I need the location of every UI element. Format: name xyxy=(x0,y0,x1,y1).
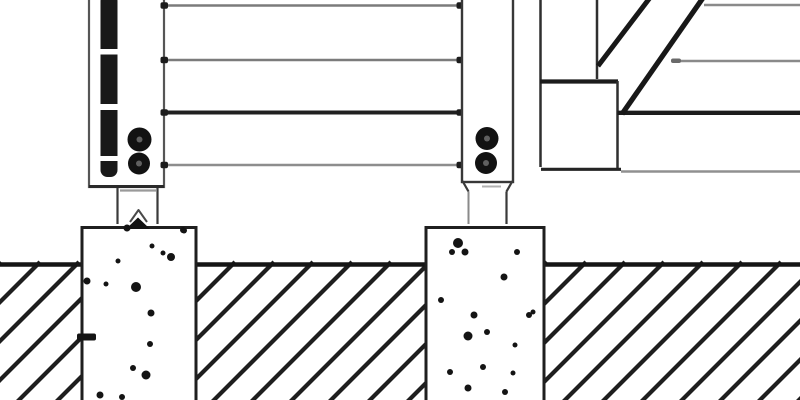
soil-hatch-line xyxy=(210,262,352,400)
diagram-svg xyxy=(0,0,800,400)
footing-speckle xyxy=(181,228,187,234)
footing-speckle xyxy=(97,392,104,399)
soil-hatch-line xyxy=(561,262,703,400)
footing-speckle xyxy=(161,251,166,256)
footing-speckle xyxy=(462,249,469,256)
footing-speckle xyxy=(513,343,518,348)
footing-speckle xyxy=(501,274,508,281)
footing-speckle xyxy=(150,244,155,249)
construction-detail-diagram xyxy=(0,0,800,400)
rail-end-tick xyxy=(161,57,169,64)
rail-end-tick xyxy=(161,109,169,116)
left-post-anchor-bar xyxy=(101,0,118,177)
footing-speckle xyxy=(147,341,153,347)
left-post-bolt-center xyxy=(137,137,143,143)
footing-speckle xyxy=(447,369,453,375)
footing-speckle xyxy=(453,238,463,248)
footing-speckle xyxy=(104,282,109,287)
left-anchor-arrow xyxy=(126,218,150,230)
footing-speckle xyxy=(148,310,155,317)
footing-speckle xyxy=(119,394,125,400)
left-footing-fill xyxy=(82,226,196,400)
footing-speckle xyxy=(142,371,151,380)
footing-speckle xyxy=(480,364,486,370)
footing-speckle xyxy=(465,385,472,392)
footing-speckle xyxy=(514,249,520,255)
soil-hatch-line xyxy=(639,262,781,400)
footing-speckle xyxy=(167,253,175,261)
soil-hatch-line xyxy=(0,262,40,400)
right-post-bolt-center xyxy=(484,136,490,142)
soil-hatch-line xyxy=(249,262,391,400)
footing-speckle xyxy=(449,249,455,255)
right-post-bolt-center xyxy=(483,160,489,166)
footing-speckle xyxy=(531,310,536,315)
footing-speckle xyxy=(130,365,136,371)
right-footing-fill xyxy=(426,226,544,400)
footing-speckle xyxy=(464,332,473,341)
footing-speckle xyxy=(131,282,141,292)
footing-speckle xyxy=(84,278,91,285)
footing-speckle xyxy=(438,297,444,303)
footing-speckle xyxy=(116,259,121,264)
soil-hatch-line xyxy=(288,262,430,400)
soil-hatch-line xyxy=(600,262,742,400)
anchor-bar-gap xyxy=(99,49,120,55)
footing-speckle xyxy=(511,371,516,376)
footing-speckle xyxy=(484,329,490,335)
anchor-bar-gap xyxy=(99,156,120,161)
footing-speckle xyxy=(471,312,478,319)
rail-end-tick xyxy=(161,162,169,169)
stringer-diagonal-upper xyxy=(598,0,652,66)
anchor-bar-gap xyxy=(99,104,120,110)
footing-speckle xyxy=(502,389,508,395)
rail-end-tick xyxy=(161,2,169,9)
left-post-bolt-center xyxy=(136,161,142,167)
stair-mid-rail-tick xyxy=(671,59,681,64)
left-footing-notch xyxy=(77,334,96,341)
